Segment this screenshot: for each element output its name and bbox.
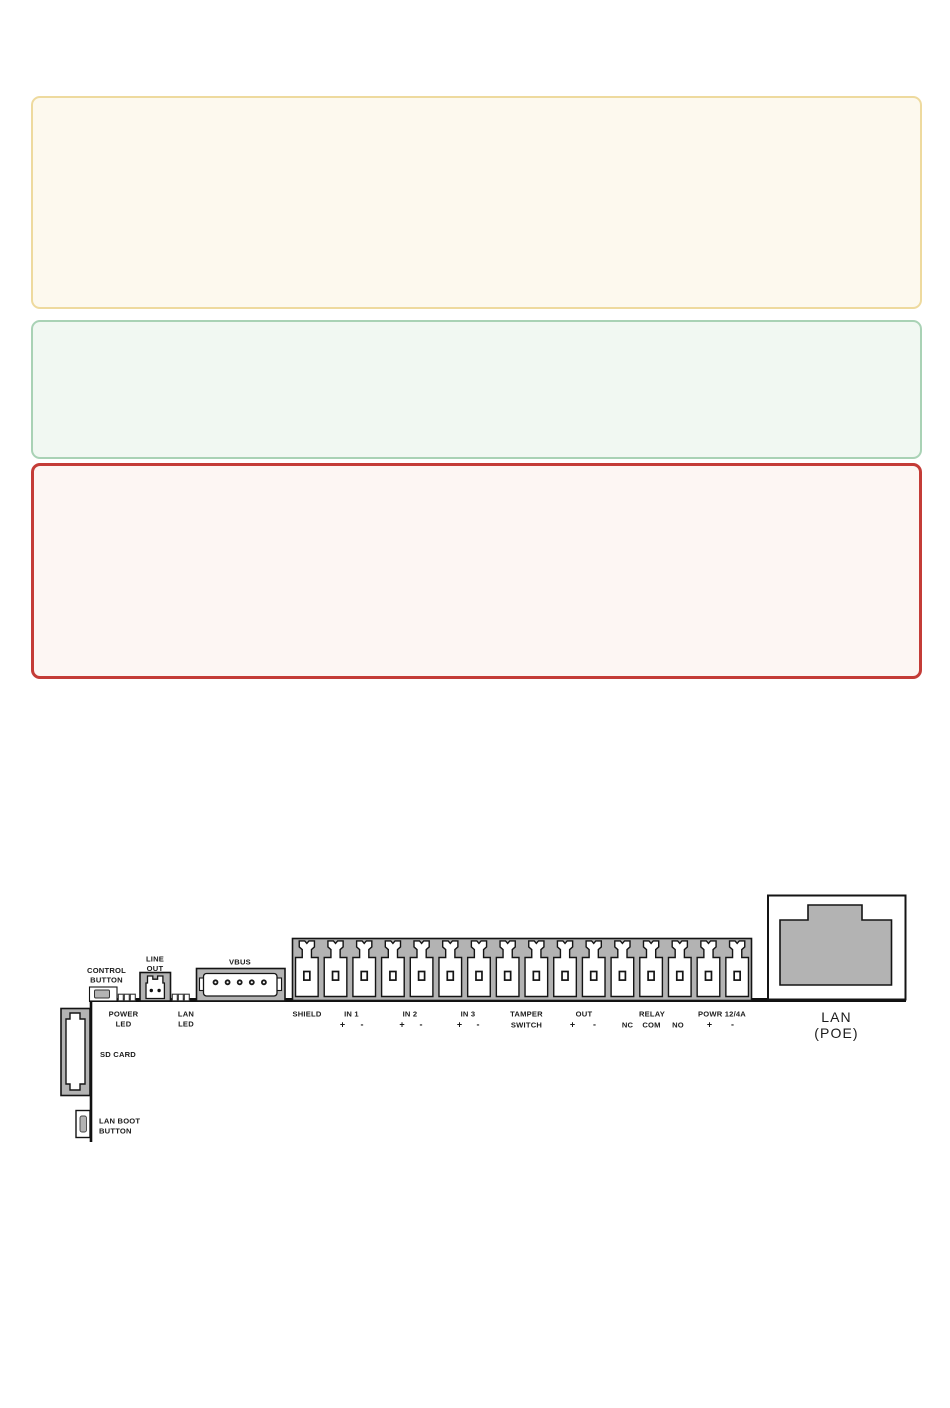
label-power-led: POWER <box>109 1010 139 1019</box>
label-in3-plus: + <box>457 1020 462 1030</box>
label-relay-nc: NC <box>622 1021 634 1030</box>
terminal-screw-hole <box>447 972 453 981</box>
label-relay-no: NO <box>672 1021 684 1030</box>
line-out-connector <box>140 973 171 1002</box>
label-vbus: VBUS <box>229 958 251 967</box>
label-powr-minus: - <box>731 1020 734 1030</box>
callout-yellow-note <box>31 96 922 309</box>
label-control-button: CONTROL <box>87 966 126 975</box>
callout-green-note <box>31 320 922 459</box>
label-lan-boot: BUTTON <box>99 1127 132 1136</box>
terminal-screw-hole <box>304 972 310 981</box>
terminal-block <box>293 939 752 1001</box>
terminal-screw-hole <box>591 972 597 981</box>
label-sd-card: SD CARD <box>100 1050 136 1059</box>
label-in3-minus: - <box>477 1020 480 1030</box>
solder-leg <box>172 994 177 1001</box>
label-shield: SHIELD <box>292 1010 321 1019</box>
label-out-minus: - <box>593 1020 596 1030</box>
terminal-screw-hole <box>533 972 539 981</box>
label-lan-boot: LAN BOOT <box>99 1117 140 1126</box>
terminal-screw-hole <box>419 972 425 981</box>
terminal-screw-hole <box>361 972 367 981</box>
solder-leg <box>118 994 123 1001</box>
label-lan-poe: (POE) <box>814 1025 858 1041</box>
label-line-out: OUT <box>147 964 164 973</box>
label-powr-plus: + <box>707 1020 712 1030</box>
label-in1-minus: - <box>361 1020 364 1030</box>
lan-poe-port <box>768 896 906 1000</box>
vbus-pin-center <box>214 981 216 983</box>
label-in1: IN 1 <box>344 1010 359 1019</box>
label-tamper-switch: TAMPER <box>510 1010 543 1019</box>
terminal-screw-hole <box>734 972 740 981</box>
sd-card-slot <box>61 1009 90 1096</box>
solder-leg <box>130 994 135 1001</box>
solder-legs <box>118 994 135 1001</box>
label-line-out: LINE <box>146 955 164 964</box>
terminal-screw-hole <box>648 972 654 981</box>
terminal-screw-hole <box>619 972 625 981</box>
label-in2: IN 2 <box>403 1010 418 1019</box>
label-out-plus: + <box>570 1020 575 1030</box>
label-lan-led: LAN <box>178 1010 194 1019</box>
terminal-screw-hole <box>333 972 339 981</box>
vbus-pin-center <box>239 981 241 983</box>
terminal-screw-hole <box>677 972 683 981</box>
label-tamper-switch: SWITCH <box>511 1021 542 1030</box>
label-in2-plus: + <box>399 1020 404 1030</box>
terminal-screw-hole <box>562 972 568 981</box>
lan-boot-button <box>76 1111 90 1138</box>
terminal-screw-hole <box>705 972 711 981</box>
label-relay: RELAY <box>639 1010 665 1019</box>
label-relay-com: COM <box>642 1021 660 1030</box>
label-out: OUT <box>576 1010 593 1019</box>
label-in3: IN 3 <box>461 1010 476 1019</box>
label-lan-led: LED <box>178 1020 194 1029</box>
solder-leg <box>124 994 129 1001</box>
label-powr: POWR 12/4A <box>698 1010 746 1019</box>
vbus-connector <box>197 969 286 1002</box>
board-edge <box>89 998 906 1142</box>
device-panel-diagram: CONTROL BUTTON LINE OUT VBUS POWER LED L… <box>0 880 950 1170</box>
label-power-led: LED <box>116 1020 132 1029</box>
solder-legs <box>172 994 189 1001</box>
solder-leg <box>178 994 183 1001</box>
solder-leg <box>184 994 189 1001</box>
label-in2-minus: - <box>420 1020 423 1030</box>
control-button <box>90 987 118 1001</box>
callout-red-note <box>31 463 922 679</box>
terminal-screw-hole <box>390 972 396 981</box>
terminal-screw-hole <box>505 972 511 981</box>
label-control-button: BUTTON <box>90 976 123 985</box>
vbus-pin-center <box>227 981 229 983</box>
vbus-pin-center <box>251 981 253 983</box>
label-in1-plus: + <box>340 1020 345 1030</box>
vbus-pin-center <box>263 981 265 983</box>
terminal-screw-hole <box>476 972 482 981</box>
label-lan-poe: LAN <box>821 1009 852 1025</box>
